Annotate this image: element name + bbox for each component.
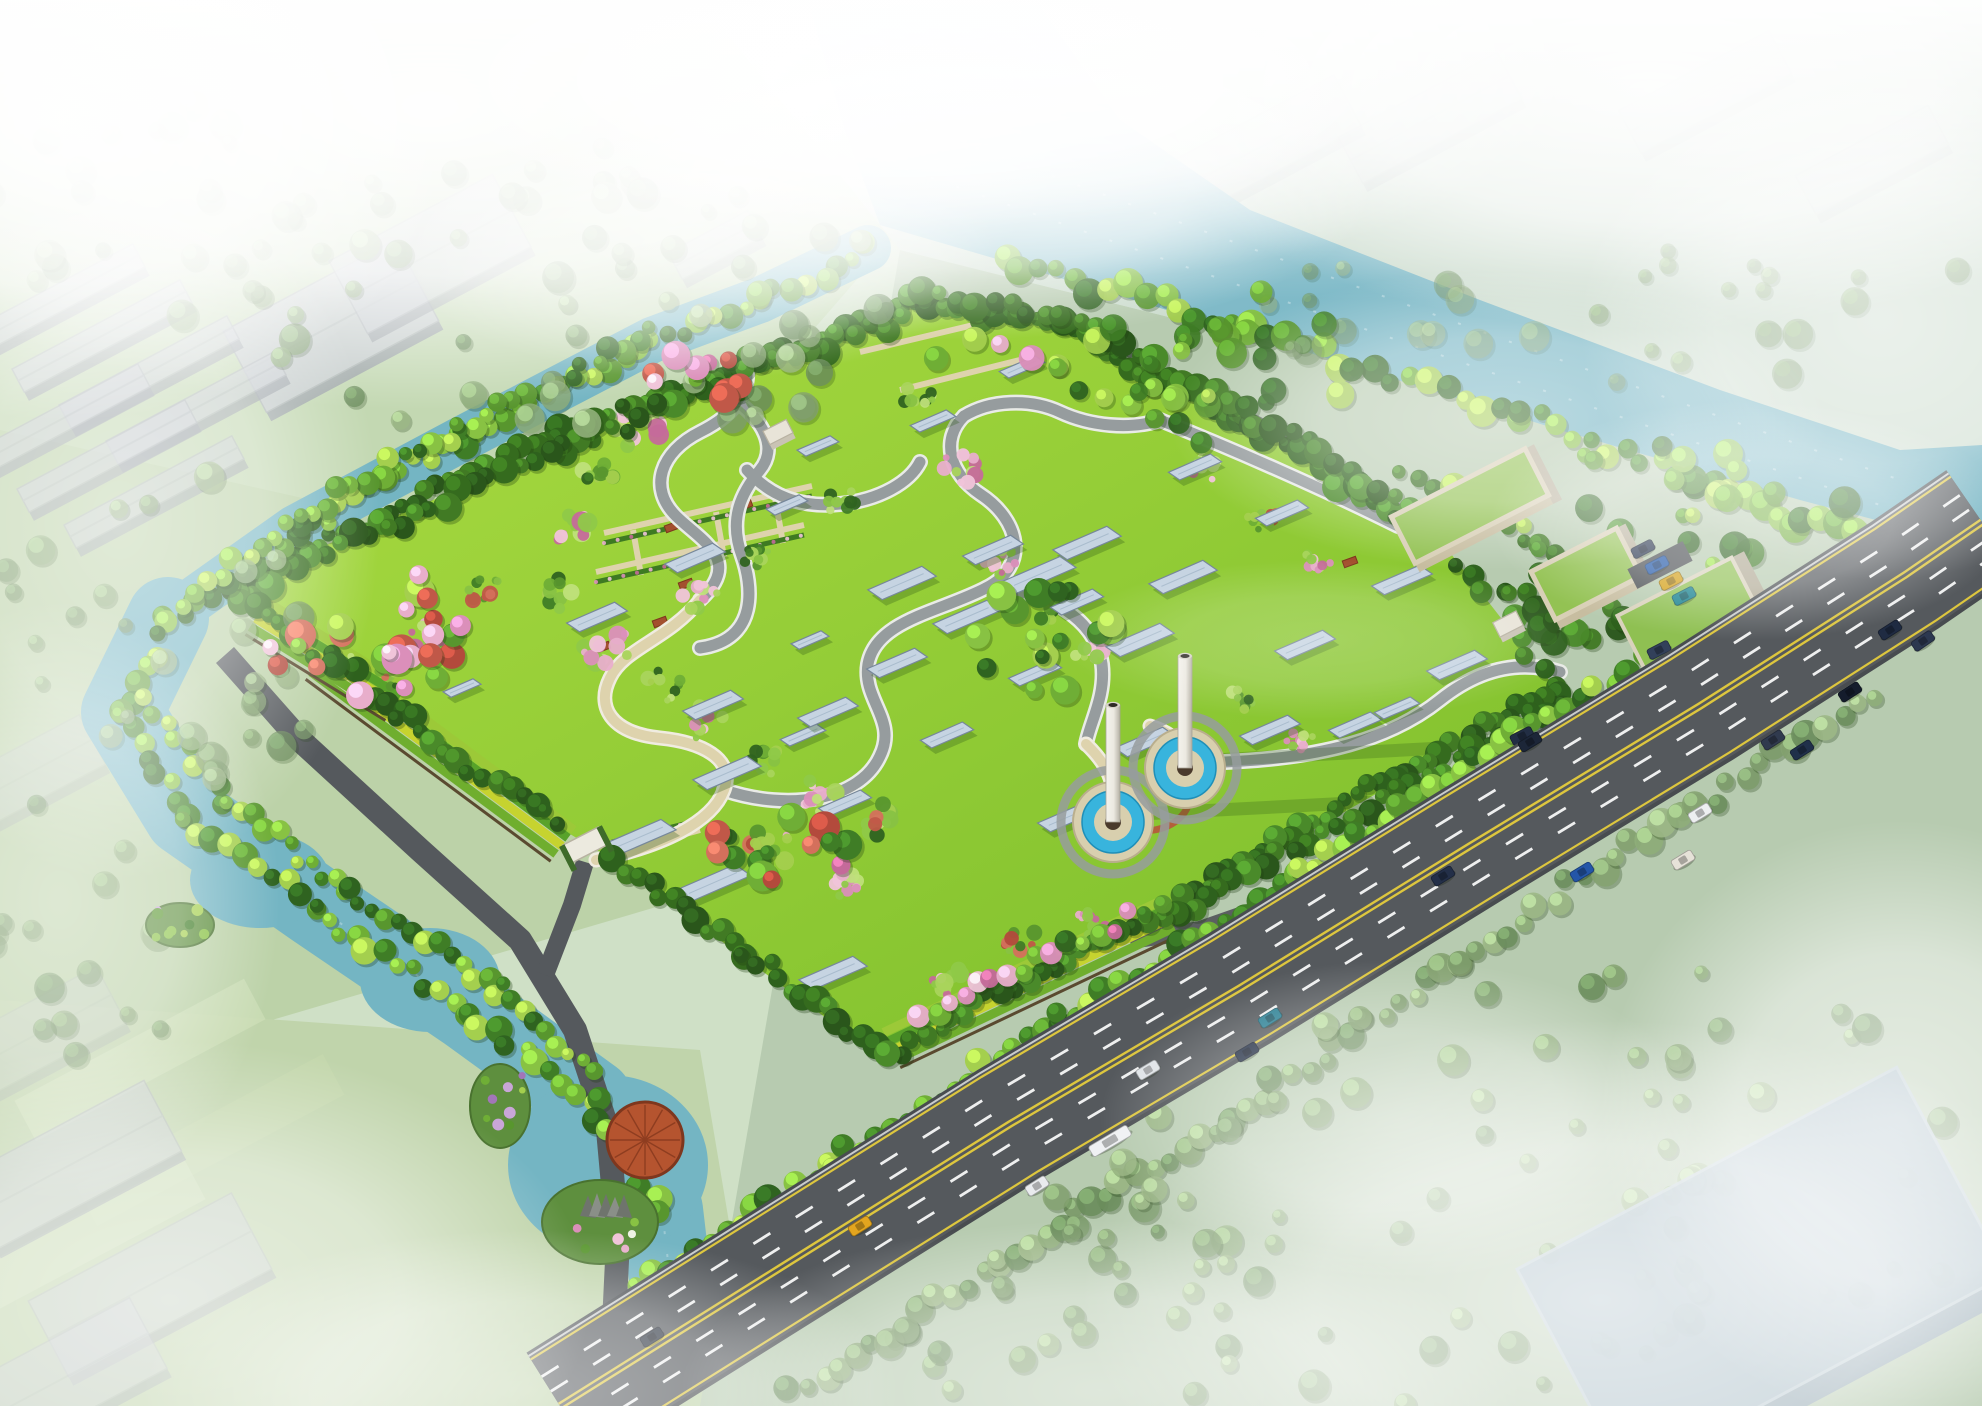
tree-highlight <box>400 603 408 611</box>
shrub <box>596 466 608 478</box>
tree-highlight <box>806 988 820 1002</box>
tree-highlight <box>1422 776 1435 789</box>
shrub <box>1255 526 1262 533</box>
tree-highlight <box>926 348 939 361</box>
shrub <box>1082 911 1093 922</box>
tree-highlight <box>853 1026 865 1038</box>
tree-highlight <box>780 805 795 820</box>
tree-highlight <box>396 500 404 508</box>
tree-highlight <box>316 873 323 880</box>
tree-highlight <box>414 725 422 733</box>
shrub <box>494 577 502 585</box>
shrub <box>584 473 593 482</box>
tree-highlight <box>1050 360 1060 370</box>
tree-highlight <box>618 866 629 877</box>
hedge-flower <box>616 538 620 542</box>
tree-highlight <box>821 998 830 1007</box>
tree-highlight <box>909 1006 921 1018</box>
tree-highlight <box>1288 843 1298 853</box>
tree-highlight <box>1109 925 1117 933</box>
tree-highlight <box>1274 875 1285 886</box>
hedge-flower <box>772 540 776 544</box>
tree-highlight <box>424 625 436 637</box>
hedge-flower <box>799 534 803 538</box>
hedge-flower <box>785 537 789 541</box>
tree-highlight <box>1616 662 1630 676</box>
tree-highlight <box>457 957 466 966</box>
shrub <box>844 495 857 508</box>
tree-highlight <box>756 1186 771 1201</box>
hedge-flower <box>657 529 661 533</box>
tree-highlight <box>727 934 737 944</box>
tree-highlight <box>734 948 742 956</box>
tree-highlight <box>1550 893 1563 906</box>
tree-highlight <box>415 932 427 944</box>
tree-highlight <box>786 1173 798 1185</box>
tree-highlight <box>1021 347 1034 360</box>
tree-highlight <box>1454 752 1461 759</box>
shrub <box>868 817 882 831</box>
shrub <box>765 548 771 554</box>
tree-highlight <box>1090 978 1103 991</box>
tree-highlight <box>791 394 807 410</box>
tree-highlight <box>1219 915 1227 923</box>
fog-patch <box>1060 560 1580 720</box>
tree-highlight <box>876 1042 890 1056</box>
tree-highlight <box>488 1018 502 1032</box>
tree-highlight <box>712 385 728 401</box>
tree-highlight <box>1389 780 1399 790</box>
tree-highlight <box>1406 786 1422 802</box>
tree-highlight <box>539 804 546 811</box>
tree-highlight <box>525 1013 535 1023</box>
hedge-flower <box>608 577 612 581</box>
shrub <box>1011 559 1019 567</box>
shrub <box>852 884 861 893</box>
tree-highlight <box>1316 841 1327 852</box>
shrub <box>768 747 781 760</box>
tree-highlight <box>1330 819 1339 828</box>
tree-highlight <box>1079 1189 1094 1204</box>
tree-highlight <box>416 481 426 491</box>
shrub <box>694 580 705 591</box>
tree-highlight <box>449 995 459 1005</box>
island-flower <box>505 1121 514 1130</box>
tree-highlight <box>1183 929 1195 941</box>
tree-highlight <box>825 1010 839 1024</box>
tree-highlight <box>392 915 400 923</box>
tree-highlight <box>1026 580 1042 596</box>
tree-highlight <box>649 395 660 406</box>
tree-highlight <box>1155 896 1165 906</box>
tree-highlight <box>400 448 407 455</box>
tree-highlight <box>1021 1028 1031 1038</box>
shrub <box>904 394 917 407</box>
tree-highlight <box>1179 334 1187 342</box>
tree-highlight <box>707 822 720 835</box>
shrub <box>464 585 473 594</box>
shrub <box>957 448 970 461</box>
shrub <box>826 506 834 514</box>
tree-highlight <box>833 1136 845 1148</box>
tree-highlight <box>1096 390 1106 400</box>
tree-highlight <box>567 1085 578 1096</box>
hedge-flower <box>602 541 606 545</box>
shrub <box>693 735 700 742</box>
tree-highlight <box>1057 932 1069 944</box>
tree-highlight <box>1053 678 1068 693</box>
island-flower <box>503 1082 513 1092</box>
tree-highlight <box>1036 651 1044 659</box>
tree-highlight <box>397 681 406 690</box>
tree-highlight <box>1289 814 1302 827</box>
tree-highlight <box>1814 717 1827 730</box>
tree-highlight <box>1464 748 1474 758</box>
tree-highlight <box>1339 794 1346 801</box>
tree-highlight <box>1388 795 1400 807</box>
hedge-flower <box>698 519 702 523</box>
shrub <box>622 650 632 660</box>
tree-highlight <box>630 409 641 420</box>
aerial-rendering <box>0 0 1982 1406</box>
shrub <box>475 575 484 584</box>
tree-highlight <box>792 986 806 1000</box>
tree-highlight <box>1138 907 1146 915</box>
tree-highlight <box>543 442 555 454</box>
tree-highlight <box>1352 787 1360 795</box>
tree-highlight <box>422 434 434 446</box>
tree-highlight <box>1092 926 1104 938</box>
shrub <box>754 555 764 565</box>
tree-highlight <box>1042 944 1054 956</box>
tree-highlight <box>678 897 688 907</box>
tree-highlight <box>1503 718 1517 732</box>
tree-highlight <box>1669 805 1682 818</box>
tree-highlight <box>290 884 302 896</box>
tree-highlight <box>1027 630 1037 640</box>
tree-highlight <box>1004 1039 1014 1049</box>
tree-highlight <box>1485 933 1497 945</box>
tree-highlight <box>353 939 367 953</box>
tree-highlight <box>551 818 559 826</box>
tree-highlight <box>575 411 590 426</box>
tree-highlight <box>1028 947 1038 957</box>
tree-highlight <box>490 772 503 785</box>
tree-highlight <box>1328 802 1337 811</box>
tree-highlight <box>547 1037 558 1048</box>
tree-highlight <box>1120 359 1132 371</box>
tree-highlight <box>967 1050 980 1063</box>
tree-highlight <box>998 966 1010 978</box>
tree-highlight <box>1608 850 1617 859</box>
tree-highlight <box>527 453 537 463</box>
tree-highlight <box>1522 704 1532 714</box>
tree-highlight <box>1556 699 1570 713</box>
tree-highlight <box>1751 754 1761 764</box>
tree-highlight <box>503 778 515 790</box>
tree-highlight <box>1120 903 1129 912</box>
tree-highlight <box>286 837 293 844</box>
shrub <box>713 589 720 596</box>
tree-highlight <box>292 857 299 864</box>
tree-highlight <box>651 890 660 899</box>
shrub <box>952 467 961 476</box>
tree-highlight <box>340 878 352 890</box>
hedge-flower <box>594 580 598 584</box>
shrub <box>465 592 481 608</box>
fog-patch <box>1100 960 1700 1280</box>
tree-highlight <box>383 646 391 654</box>
shrub <box>648 679 655 686</box>
shrub <box>951 962 967 978</box>
tree-highlight <box>552 1076 564 1088</box>
shrub <box>831 497 842 508</box>
tree-highlight <box>436 495 451 510</box>
shrub <box>943 454 950 461</box>
hedge-flower <box>711 516 715 520</box>
shrub <box>767 770 775 778</box>
tree-highlight <box>989 583 1004 598</box>
tree-highlight <box>517 406 533 422</box>
tree-highlight <box>307 856 314 863</box>
tree-highlight <box>460 1005 471 1016</box>
shrub <box>554 577 566 589</box>
tree-highlight <box>537 1022 547 1032</box>
tree-highlight <box>812 814 828 830</box>
tree-highlight <box>422 732 435 745</box>
tree-highlight <box>405 705 418 718</box>
shrub <box>803 775 816 788</box>
tree-highlight <box>982 970 992 980</box>
tree-highlight <box>822 834 832 844</box>
hedge-flower <box>621 574 625 578</box>
hedge-flower <box>643 532 647 536</box>
tree-highlight <box>503 991 513 1001</box>
tree-highlight <box>584 1109 598 1123</box>
shrub <box>847 487 856 496</box>
tree-highlight <box>1498 928 1509 939</box>
shrub <box>676 588 690 602</box>
tree-highlight <box>1453 762 1466 775</box>
tree-highlight <box>684 908 699 923</box>
tree-highlight <box>403 923 414 934</box>
island-shrub <box>630 1218 639 1227</box>
stack-mouth <box>1108 703 1117 707</box>
tree-highlight <box>378 448 390 460</box>
tree-highlight <box>1147 410 1157 420</box>
tree-highlight <box>474 770 484 780</box>
tree-highlight <box>1376 790 1384 798</box>
shrub <box>563 584 580 601</box>
tree-highlight <box>1583 677 1594 688</box>
tree-highlight <box>445 948 454 957</box>
shrub <box>578 512 598 532</box>
shrub <box>485 589 495 599</box>
tree-highlight <box>943 996 952 1005</box>
hedge-flower <box>752 507 756 511</box>
tree-highlight <box>1290 859 1301 870</box>
tree-highlight <box>749 863 765 879</box>
rendering-canvas <box>0 0 1982 1406</box>
tree-highlight <box>420 645 433 658</box>
shrub <box>654 674 666 686</box>
tree-highlight <box>426 611 436 621</box>
tree-highlight <box>351 897 358 904</box>
tree-highlight <box>497 977 504 984</box>
island-flower <box>481 1076 490 1085</box>
shrub <box>960 475 975 490</box>
tree-highlight <box>381 520 390 529</box>
shrub <box>999 570 1005 576</box>
tree-highlight <box>481 969 493 981</box>
tree-highlight <box>587 1063 596 1072</box>
tree-highlight <box>840 1027 849 1036</box>
tree-highlight <box>460 766 468 774</box>
shrub <box>1006 947 1013 954</box>
island-flower <box>518 1072 525 1079</box>
tree-highlight <box>1174 343 1183 352</box>
shrub <box>589 635 606 652</box>
tree-highlight <box>667 888 678 899</box>
tree-highlight <box>930 1004 942 1016</box>
shrub <box>935 973 953 991</box>
shrub <box>608 638 625 655</box>
viewing-deck <box>607 1102 683 1178</box>
tree-highlight <box>770 970 780 980</box>
tree-highlight <box>616 399 624 407</box>
tree-highlight <box>389 711 398 720</box>
tree-highlight <box>1523 894 1536 907</box>
shrub <box>749 745 763 759</box>
tree-highlight <box>748 957 758 967</box>
tree-highlight <box>391 959 399 967</box>
shrub <box>664 697 670 703</box>
tree-highlight <box>969 973 980 984</box>
tree-highlight <box>646 874 657 885</box>
tree-highlight <box>1173 885 1185 897</box>
tree-highlight <box>467 419 478 430</box>
tree-highlight <box>1868 691 1877 700</box>
tree-highlight <box>1618 830 1630 842</box>
tree-highlight <box>606 420 614 428</box>
stack-body <box>1106 705 1120 822</box>
shrub <box>841 881 848 888</box>
tree-highlight <box>528 794 541 807</box>
tree-highlight <box>621 425 629 433</box>
tree-highlight <box>392 412 402 422</box>
shrub <box>554 530 568 544</box>
tree-highlight <box>1027 682 1036 691</box>
island-flower <box>488 1094 497 1103</box>
tree-highlight <box>430 933 442 945</box>
tree-highlight <box>395 701 405 711</box>
tree-highlight <box>959 988 968 997</box>
tree-highlight <box>485 986 496 997</box>
shrub <box>812 794 822 804</box>
tree-highlight <box>407 961 415 969</box>
tree-highlight <box>1739 769 1751 781</box>
tree-highlight <box>444 434 454 444</box>
island-flower <box>492 1119 504 1131</box>
shrub <box>937 461 952 476</box>
tree-highlight <box>1209 318 1221 330</box>
island-flower <box>504 1107 516 1119</box>
tree-highlight <box>713 920 725 932</box>
shrub <box>782 834 792 844</box>
shrub <box>674 675 685 686</box>
hedge-flower <box>635 571 639 575</box>
tree-highlight <box>578 1055 585 1062</box>
tree-highlight <box>523 1050 537 1064</box>
island-flower <box>483 1115 490 1122</box>
tree-highlight <box>1475 713 1486 724</box>
tree-highlight <box>1131 384 1140 393</box>
tree-highlight <box>589 1089 601 1101</box>
tree-highlight <box>967 625 980 638</box>
shrub <box>685 602 698 615</box>
shrub <box>597 655 613 671</box>
tree-highlight <box>330 870 340 880</box>
tree-highlight <box>492 457 507 472</box>
tree-highlight <box>1205 864 1219 878</box>
tree-highlight <box>1467 943 1477 953</box>
tree-highlight <box>332 929 339 936</box>
tree-highlight <box>414 445 421 452</box>
shrub <box>1004 931 1019 946</box>
tree-highlight <box>311 900 318 907</box>
tree-highlight <box>1794 722 1809 737</box>
tree-highlight <box>451 418 458 425</box>
tree-highlight <box>1540 707 1550 717</box>
tree-highlight <box>1649 810 1664 825</box>
tree-highlight <box>1684 793 1697 806</box>
tree-highlight <box>446 476 461 491</box>
tree-highlight <box>419 589 430 600</box>
tree-highlight <box>1556 871 1566 881</box>
tree-highlight <box>1316 826 1324 834</box>
tree-highlight <box>366 905 373 912</box>
hedge-flower <box>725 513 729 517</box>
hedge-flower <box>649 568 653 572</box>
tree-highlight <box>562 1049 568 1055</box>
tree-highlight <box>349 927 361 939</box>
tree-highlight <box>701 926 709 934</box>
tree-highlight <box>1837 707 1847 717</box>
tree-highlight <box>452 617 463 628</box>
tree-highlight <box>1071 383 1081 393</box>
island-flower <box>519 1087 526 1094</box>
tree-highlight <box>415 980 425 990</box>
tree-highlight <box>1359 775 1369 785</box>
tree-highlight <box>1346 823 1357 834</box>
tree-highlight <box>764 872 773 881</box>
tree-highlight <box>376 910 387 921</box>
tree-highlight <box>1604 966 1616 978</box>
tree-highlight <box>431 982 441 992</box>
shrub <box>1309 733 1316 740</box>
tree-highlight <box>1507 695 1518 706</box>
tree-highlight <box>324 914 332 922</box>
tree-highlight <box>1516 916 1525 925</box>
tree-highlight <box>1581 975 1595 989</box>
shrub <box>1034 612 1048 626</box>
tree-highlight <box>708 842 720 854</box>
tree-highlight <box>496 1037 507 1048</box>
tree-highlight <box>766 955 774 963</box>
tree-highlight <box>1321 813 1331 823</box>
shrub <box>929 396 936 403</box>
tree-highlight <box>1709 796 1719 806</box>
